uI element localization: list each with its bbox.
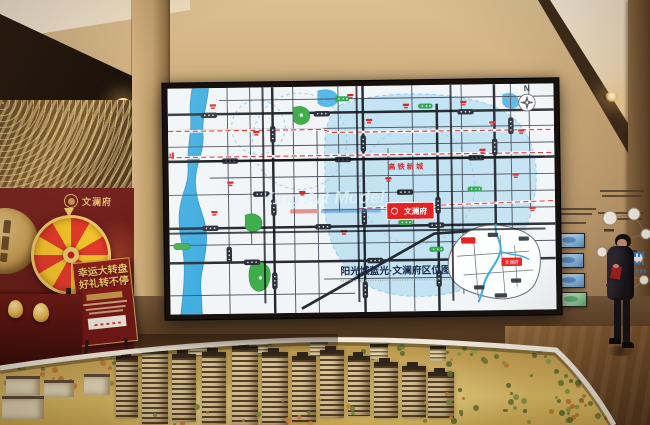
watermark-sub-red [290, 209, 317, 214]
promo-logo: 文澜府 [64, 194, 112, 208]
district-label: 高铁新城 [388, 162, 425, 172]
map-display: 高铁新城 文澜府 King Art Model 阳光城蓝光·文澜府区位图 [167, 83, 556, 314]
person-hand [613, 264, 619, 268]
model-shadow [138, 334, 338, 352]
sign-footer-image [87, 315, 126, 330]
inset-project-marker: 文澜府 [501, 257, 522, 266]
exhibit-mini-screen [558, 292, 587, 307]
golden-egg [8, 300, 23, 318]
downlight [604, 92, 620, 102]
wheel-pointer-icon [64, 208, 74, 217]
watermark: King Art Model [261, 187, 386, 209]
project-marker: 文澜府 [387, 202, 434, 219]
map-video-wall: 高铁新城 文澜府 King Art Model 阳光城蓝光·文澜府区位图 [162, 78, 561, 320]
area-map: 高铁新城 文澜府 King Art Model 阳光城蓝光·文澜府区位图 [167, 83, 556, 314]
sales-gallery-photo: 文澜府 幸运大转盘 好礼转不停 [0, 0, 650, 425]
exhibit-text-line [556, 208, 596, 210]
project-marker-label: 文澜府 [404, 206, 427, 216]
exhibit-text-line [556, 213, 592, 215]
sign-badge [86, 291, 122, 301]
brand-logo-text: 文澜府 [82, 195, 112, 208]
watermark-sub-blue [321, 208, 381, 213]
brand-seal-icon [64, 194, 78, 208]
sign-text-line [89, 309, 123, 315]
exhibit-text-line [602, 195, 642, 197]
gold-mesh-curtain [0, 100, 134, 194]
compass-n-label: N [524, 83, 530, 93]
golden-egg [33, 303, 49, 322]
exhibit-text-line [600, 190, 644, 192]
exhibit-text-line [560, 222, 586, 224]
